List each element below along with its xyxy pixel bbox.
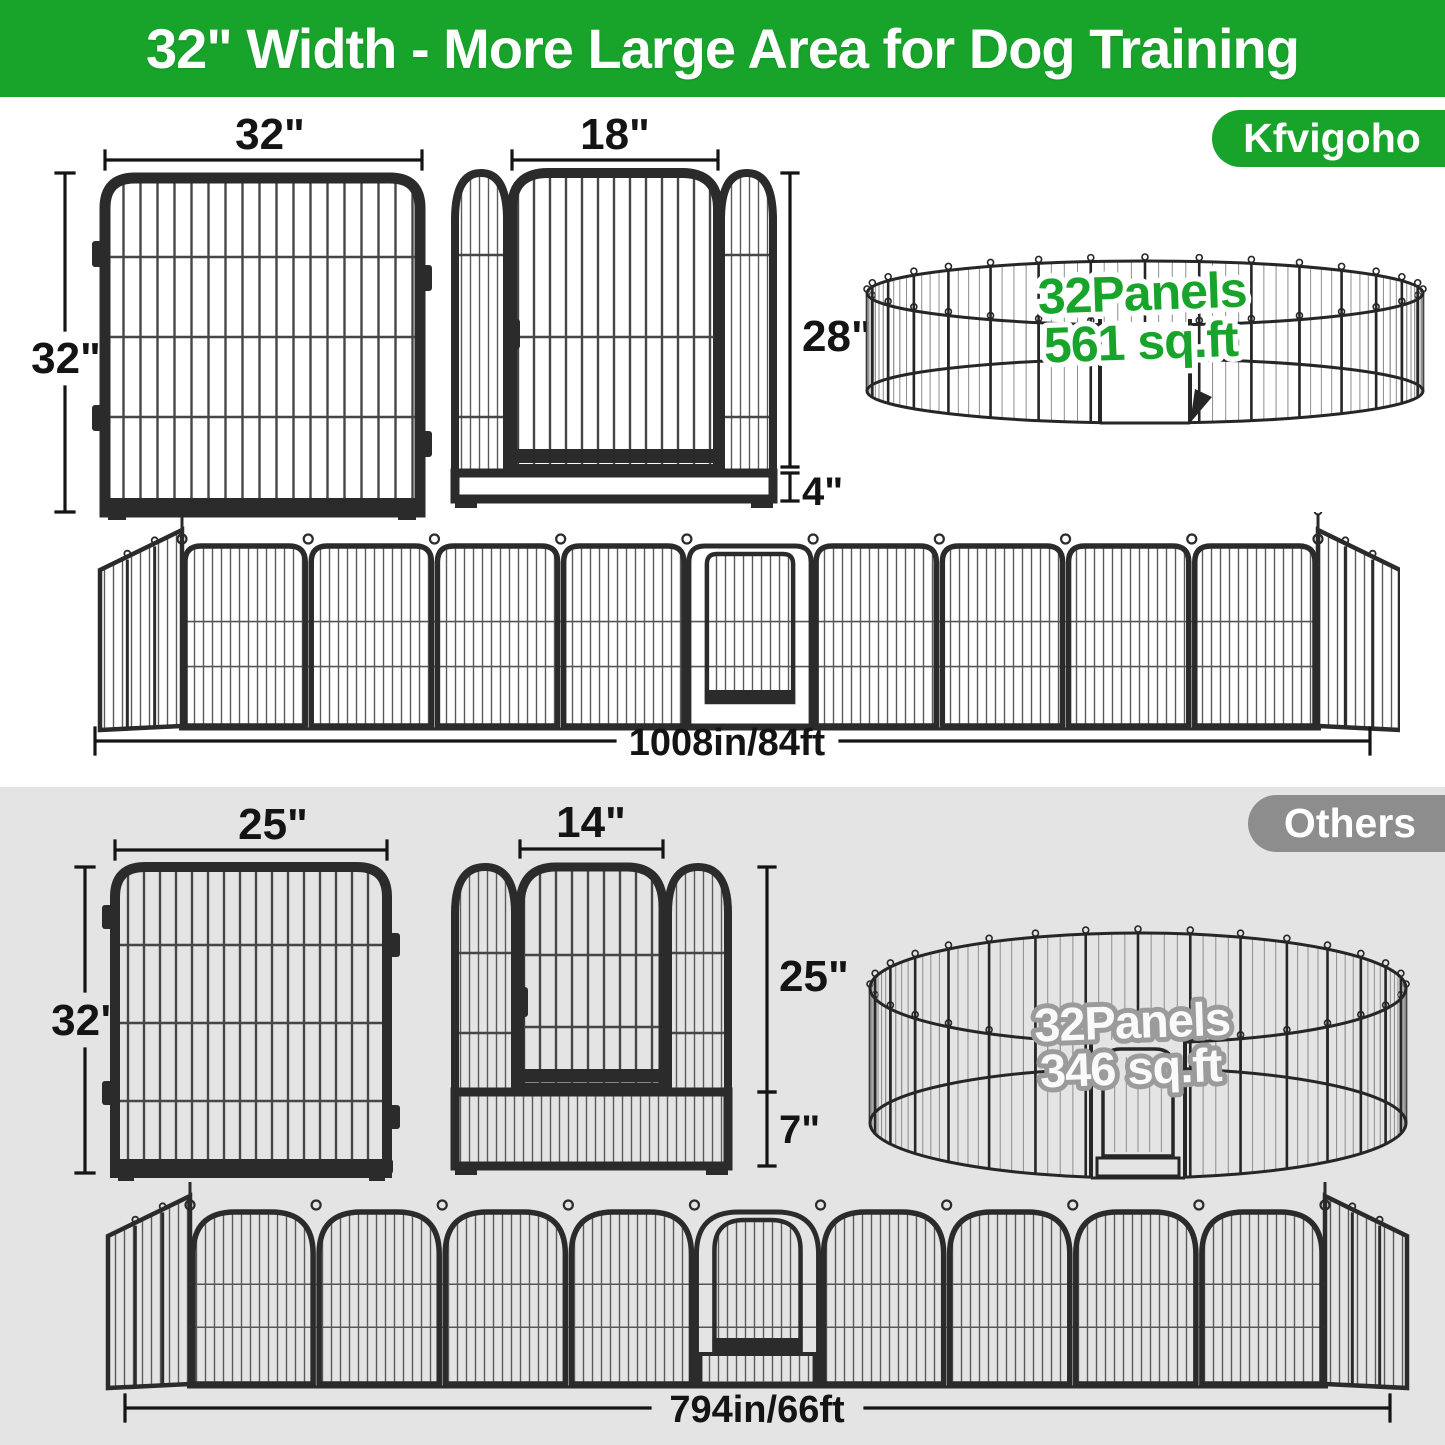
brand-badge-label: Kfvigoho [1243, 115, 1421, 162]
dimension-line [759, 867, 775, 1092]
kfvigoho-fence-row-illustration: 1008in/84ft [55, 512, 1400, 774]
kfvigoho-row-length-label: 1008in/84ft [629, 722, 826, 764]
others-gate-bottom-dimension: 7" [759, 1092, 820, 1166]
others-fence-row-drawing [108, 1182, 1407, 1388]
kfvigoho-panel-drawing [92, 178, 432, 520]
kfvigoho-ring-area-label: 561 sq.ft [1043, 311, 1240, 374]
others-panel-width-dimension: 25" [115, 800, 387, 859]
others-gate-width-dimension: 14" [520, 798, 663, 857]
others-ring-illustration: 32Panels 346 sq.ft [845, 888, 1445, 1223]
kfvigoho-ring-illustration: 32Panels 561 sq.ft [850, 178, 1445, 508]
kfvigoho-panel-width-label: 32" [235, 110, 305, 159]
others-gate-door-height-label: 25" [779, 952, 849, 1001]
kfvigoho-gate-width-dimension: 18" [512, 110, 718, 169]
others-gate-width-label: 14" [556, 798, 626, 847]
others-fence-row-illustration: 794in/66ft [75, 1182, 1435, 1443]
kfvigoho-gate-bottom-dimension: 4" [782, 470, 843, 514]
kfvigoho-panel-height-dimension: 32" [31, 173, 101, 512]
others-gate-bottom-label: 7" [779, 1108, 820, 1152]
kfvigoho-panel-height-label: 32" [31, 334, 101, 383]
others-ring-area-label: 346 sq.ft [1039, 1038, 1224, 1097]
kfvigoho-fence-row-drawing [100, 512, 1400, 730]
others-panel-diagram: 25" 32" [40, 795, 470, 1215]
kfvigoho-panel-width-dimension: 32" [105, 110, 422, 169]
kfvigoho-gate-diagram: 18" 28" 4" [430, 105, 885, 530]
others-ring-caption: 32Panels 346 sq.ft [1033, 992, 1232, 1098]
others-gate-door-height-dimension: 25" [759, 867, 849, 1092]
others-gate-diagram: 14" 25" 7" [420, 795, 885, 1230]
others-row-length-label: 794in/66ft [669, 1389, 845, 1431]
header-banner: 32" Width - More Large Area for Dog Trai… [0, 0, 1445, 97]
dimension-line [782, 473, 798, 501]
gate-latch [512, 987, 528, 1017]
kfvigoho-gate-drawing [455, 173, 773, 508]
dimension-line [759, 1092, 775, 1166]
kfvigoho-gate-bottom-label: 4" [802, 470, 843, 514]
kfvigoho-ring-caption: 32Panels 561 sq.ft [1037, 261, 1249, 373]
others-gate-drawing [455, 867, 728, 1175]
kfvigoho-gate-width-label: 18" [580, 110, 650, 159]
others-panel-drawing [102, 867, 400, 1181]
header-title: 32" Width - More Large Area for Dog Trai… [146, 16, 1299, 81]
others-row-length-dimension: 794in/66ft [125, 1389, 1390, 1431]
others-panel-width-label: 25" [238, 800, 308, 849]
others-badge: Others [1248, 795, 1445, 852]
others-badge-label: Others [1284, 800, 1416, 847]
brand-badge: Kfvigoho [1212, 110, 1445, 167]
dimension-line [782, 173, 798, 467]
kfvigoho-panel-diagram: 32" 32" [30, 105, 465, 530]
gate-latch [504, 319, 520, 349]
